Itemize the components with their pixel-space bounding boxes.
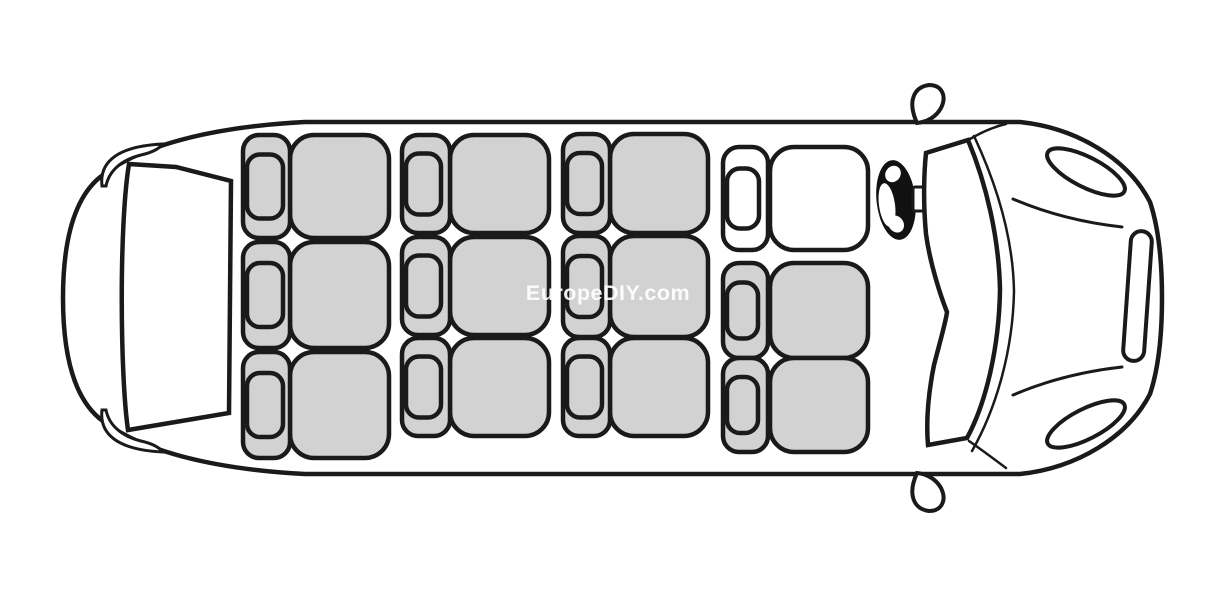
rear-bench-seat-3-headrest bbox=[247, 373, 283, 437]
driver-seat-cushion bbox=[770, 147, 868, 250]
front-passenger-seat-2 bbox=[723, 358, 868, 452]
driver-side-mirror bbox=[912, 85, 943, 123]
van-seating-diagram-canvas: EuropeDIY.com bbox=[0, 0, 1225, 598]
passenger-side-mirror bbox=[912, 473, 943, 511]
middle-bench-1-seat-2-headrest bbox=[406, 256, 441, 317]
rear-bench-seat-1-headrest bbox=[247, 155, 283, 219]
van-seating-diagram: EuropeDIY.com bbox=[0, 0, 1225, 598]
rear-bench-seat-1-cushion bbox=[290, 135, 389, 238]
middle-bench-1-seat-1-cushion bbox=[450, 135, 549, 233]
a-pillar-lower bbox=[969, 441, 1006, 468]
rear-bench-seat-2 bbox=[243, 242, 389, 348]
front-passenger-seat-2-cushion bbox=[770, 358, 868, 452]
headlight-lower bbox=[1041, 391, 1131, 457]
hood-crease-upper bbox=[1013, 199, 1122, 227]
front-passenger-seat-1-headrest bbox=[727, 283, 758, 339]
middle-bench-2-seat-3-cushion bbox=[610, 338, 708, 436]
rear-bench-seat-1 bbox=[243, 135, 389, 238]
front-passenger-seat-2-headrest bbox=[727, 377, 758, 433]
hood-crease-lower bbox=[1013, 367, 1122, 395]
middle-bench-1-seat-1-headrest bbox=[406, 154, 441, 215]
middle-bench-1-seat-1 bbox=[402, 135, 549, 233]
middle-bench-2-seat-1-headrest bbox=[567, 153, 602, 214]
headlight-upper bbox=[1041, 139, 1131, 205]
middle-bench-2-seat-1 bbox=[563, 134, 708, 233]
middle-bench-2-seat-3 bbox=[563, 338, 708, 436]
rear-bench-seat-2-cushion bbox=[290, 242, 389, 348]
watermark: EuropeDIY.com bbox=[526, 281, 690, 305]
steering-wheel bbox=[872, 158, 924, 242]
driver-seat bbox=[723, 147, 868, 250]
front-grille bbox=[1122, 230, 1152, 361]
rear-hatch-window bbox=[122, 164, 231, 430]
front-passenger-seat-1 bbox=[723, 263, 868, 358]
rear-bench-seat-2-headrest bbox=[247, 263, 283, 327]
rear-bench-seat-3 bbox=[243, 352, 389, 458]
front-passenger-seat-1-cushion bbox=[770, 263, 868, 358]
middle-bench-1-seat-3 bbox=[402, 338, 549, 436]
driver-seat-headrest bbox=[727, 169, 759, 229]
rear-bench-seat-3-cushion bbox=[290, 352, 389, 458]
middle-bench-1-seat-3-cushion bbox=[450, 338, 549, 436]
middle-bench-1-seat-3-headrest bbox=[406, 357, 441, 418]
middle-bench-2-seat-1-cushion bbox=[610, 134, 708, 233]
windshield bbox=[924, 140, 1000, 445]
middle-bench-2-seat-3-headrest bbox=[567, 357, 602, 418]
a-pillar-upper bbox=[970, 124, 1006, 139]
